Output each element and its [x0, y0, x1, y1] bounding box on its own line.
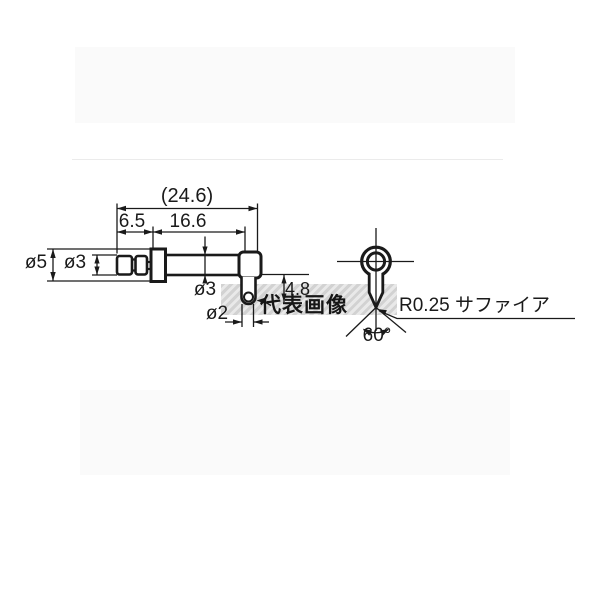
dim-tip-stem-diameter-label: ø2 [195, 304, 239, 324]
plug-segment-1 [117, 256, 132, 275]
plug-segment-2 [136, 256, 148, 275]
watermark-text: 代表画像 [260, 289, 348, 319]
shaft [165, 255, 240, 275]
dim-flange-diameter-label: ø5 [14, 253, 58, 273]
dim-plug-diameter-label: ø3 [53, 253, 97, 273]
tip-ball [244, 293, 253, 302]
dim-shaft-length-label: 16.6 [163, 212, 213, 232]
flange [151, 249, 166, 282]
dim-shaft-diameter-label: ø3 [183, 280, 227, 300]
tip-material-note: R0.25 サファイア [399, 296, 550, 316]
dim-overall-length-label: (24.6) [147, 186, 227, 207]
dim-rear-length-label: 6.5 [107, 212, 157, 232]
shaft-end-cap [239, 252, 261, 278]
drawing-area: (24.6) 6.5 16.6 ø5 ø3 ø3 ø2 4.8 60° R0.2… [0, 0, 600, 600]
dim-tip-angle-label: 60° [347, 326, 407, 346]
